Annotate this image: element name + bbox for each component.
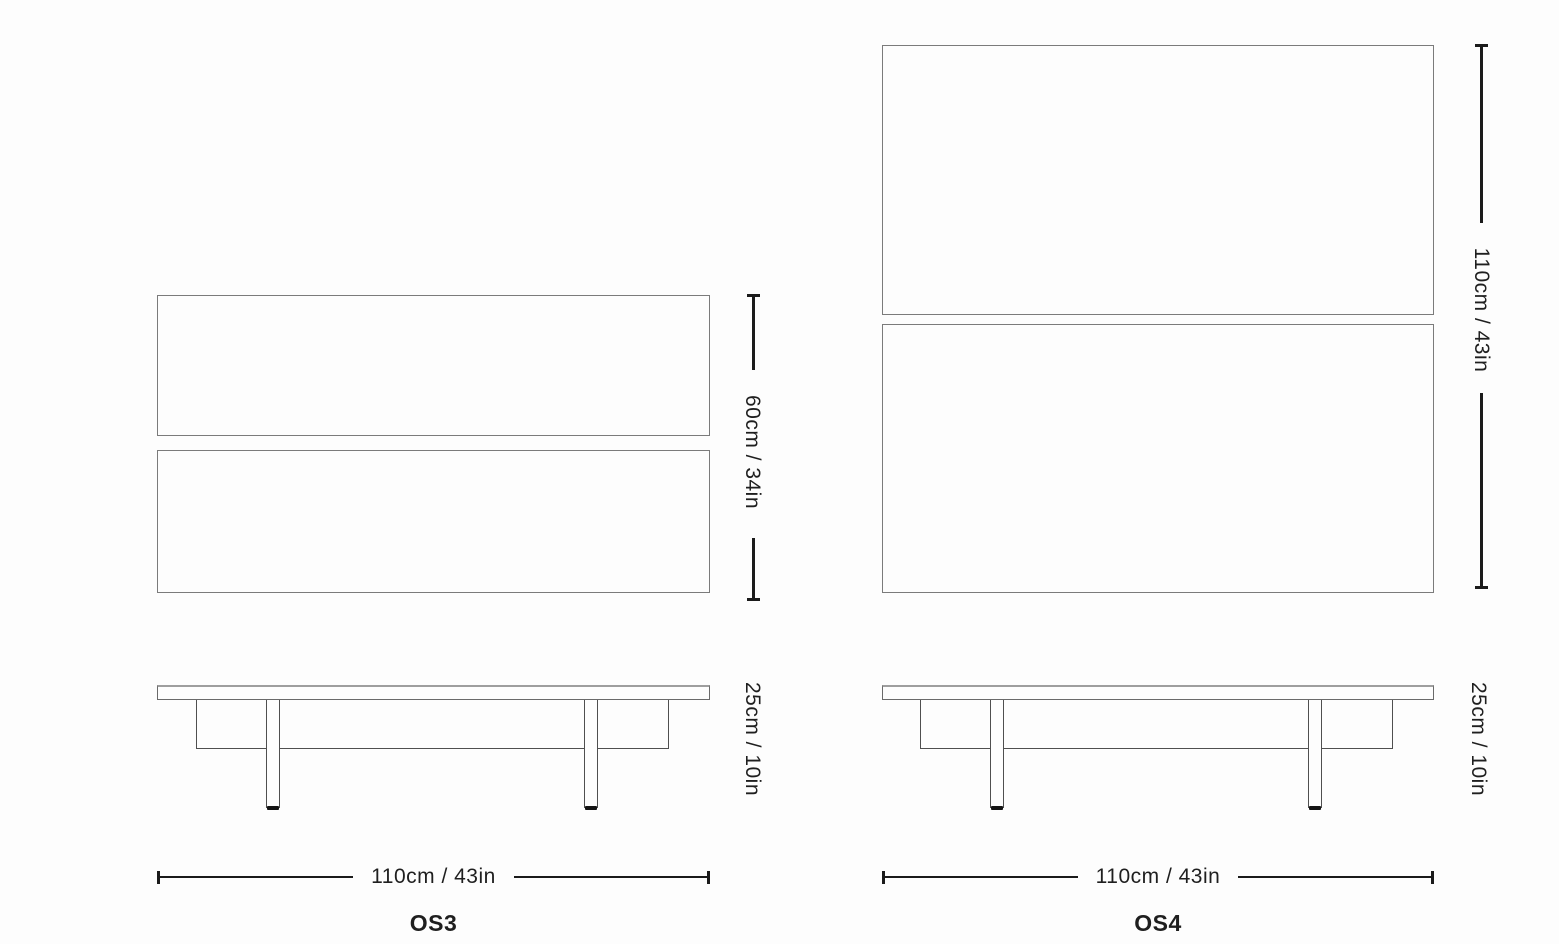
dimension-tick [747, 598, 760, 601]
os4-width-dimension-label: 110cm / 43in [1078, 865, 1239, 889]
dimension-tick [707, 871, 710, 884]
os3-width-dimension: 110cm / 43in [157, 864, 710, 890]
dimension-line [1480, 46, 1483, 223]
os3-top-panel-2 [157, 450, 710, 593]
os4-foot-right [1309, 806, 1321, 810]
dimension-line [1480, 393, 1483, 588]
os4-depth-dimension-label: 110cm / 43in [1469, 240, 1493, 380]
os4-leg-left [990, 699, 1004, 808]
os3-foot-right [585, 806, 597, 810]
os4-leg-right [1308, 699, 1322, 808]
dimension-tick [1431, 871, 1434, 884]
dimension-line [752, 296, 755, 370]
dimension-line [1238, 876, 1431, 878]
dimension-line [514, 876, 707, 878]
dimension-drawing-canvas: 60cm / 34in 25cm / 10in 110cm / 43in OS3 [0, 0, 1559, 944]
os4-height-dimension-label: 25cm / 10in [1466, 669, 1490, 809]
os4-model-label: OS4 [882, 910, 1434, 937]
os3-top-panel-1 [157, 295, 710, 436]
os4-top-panel-2 [882, 324, 1434, 593]
os4-top-panel-1 [882, 45, 1434, 315]
os4-width-dimension: 110cm / 43in [882, 864, 1434, 890]
os4-foot-left [991, 806, 1003, 810]
os3-foot-left [267, 806, 279, 810]
dimension-line [752, 538, 755, 600]
os3-tabletop [157, 685, 710, 700]
os3-height-dimension-label: 25cm / 10in [740, 669, 764, 809]
os3-width-dimension-label: 110cm / 43in [353, 865, 514, 889]
dimension-line [885, 876, 1078, 878]
os3-model-label: OS3 [157, 910, 710, 937]
os3-leg-left [266, 699, 280, 808]
os4-tabletop [882, 685, 1434, 700]
dimension-line [160, 876, 353, 878]
dimension-tick [1475, 586, 1488, 589]
os3-depth-dimension-label: 60cm / 34in [740, 382, 764, 522]
os3-leg-right [584, 699, 598, 808]
